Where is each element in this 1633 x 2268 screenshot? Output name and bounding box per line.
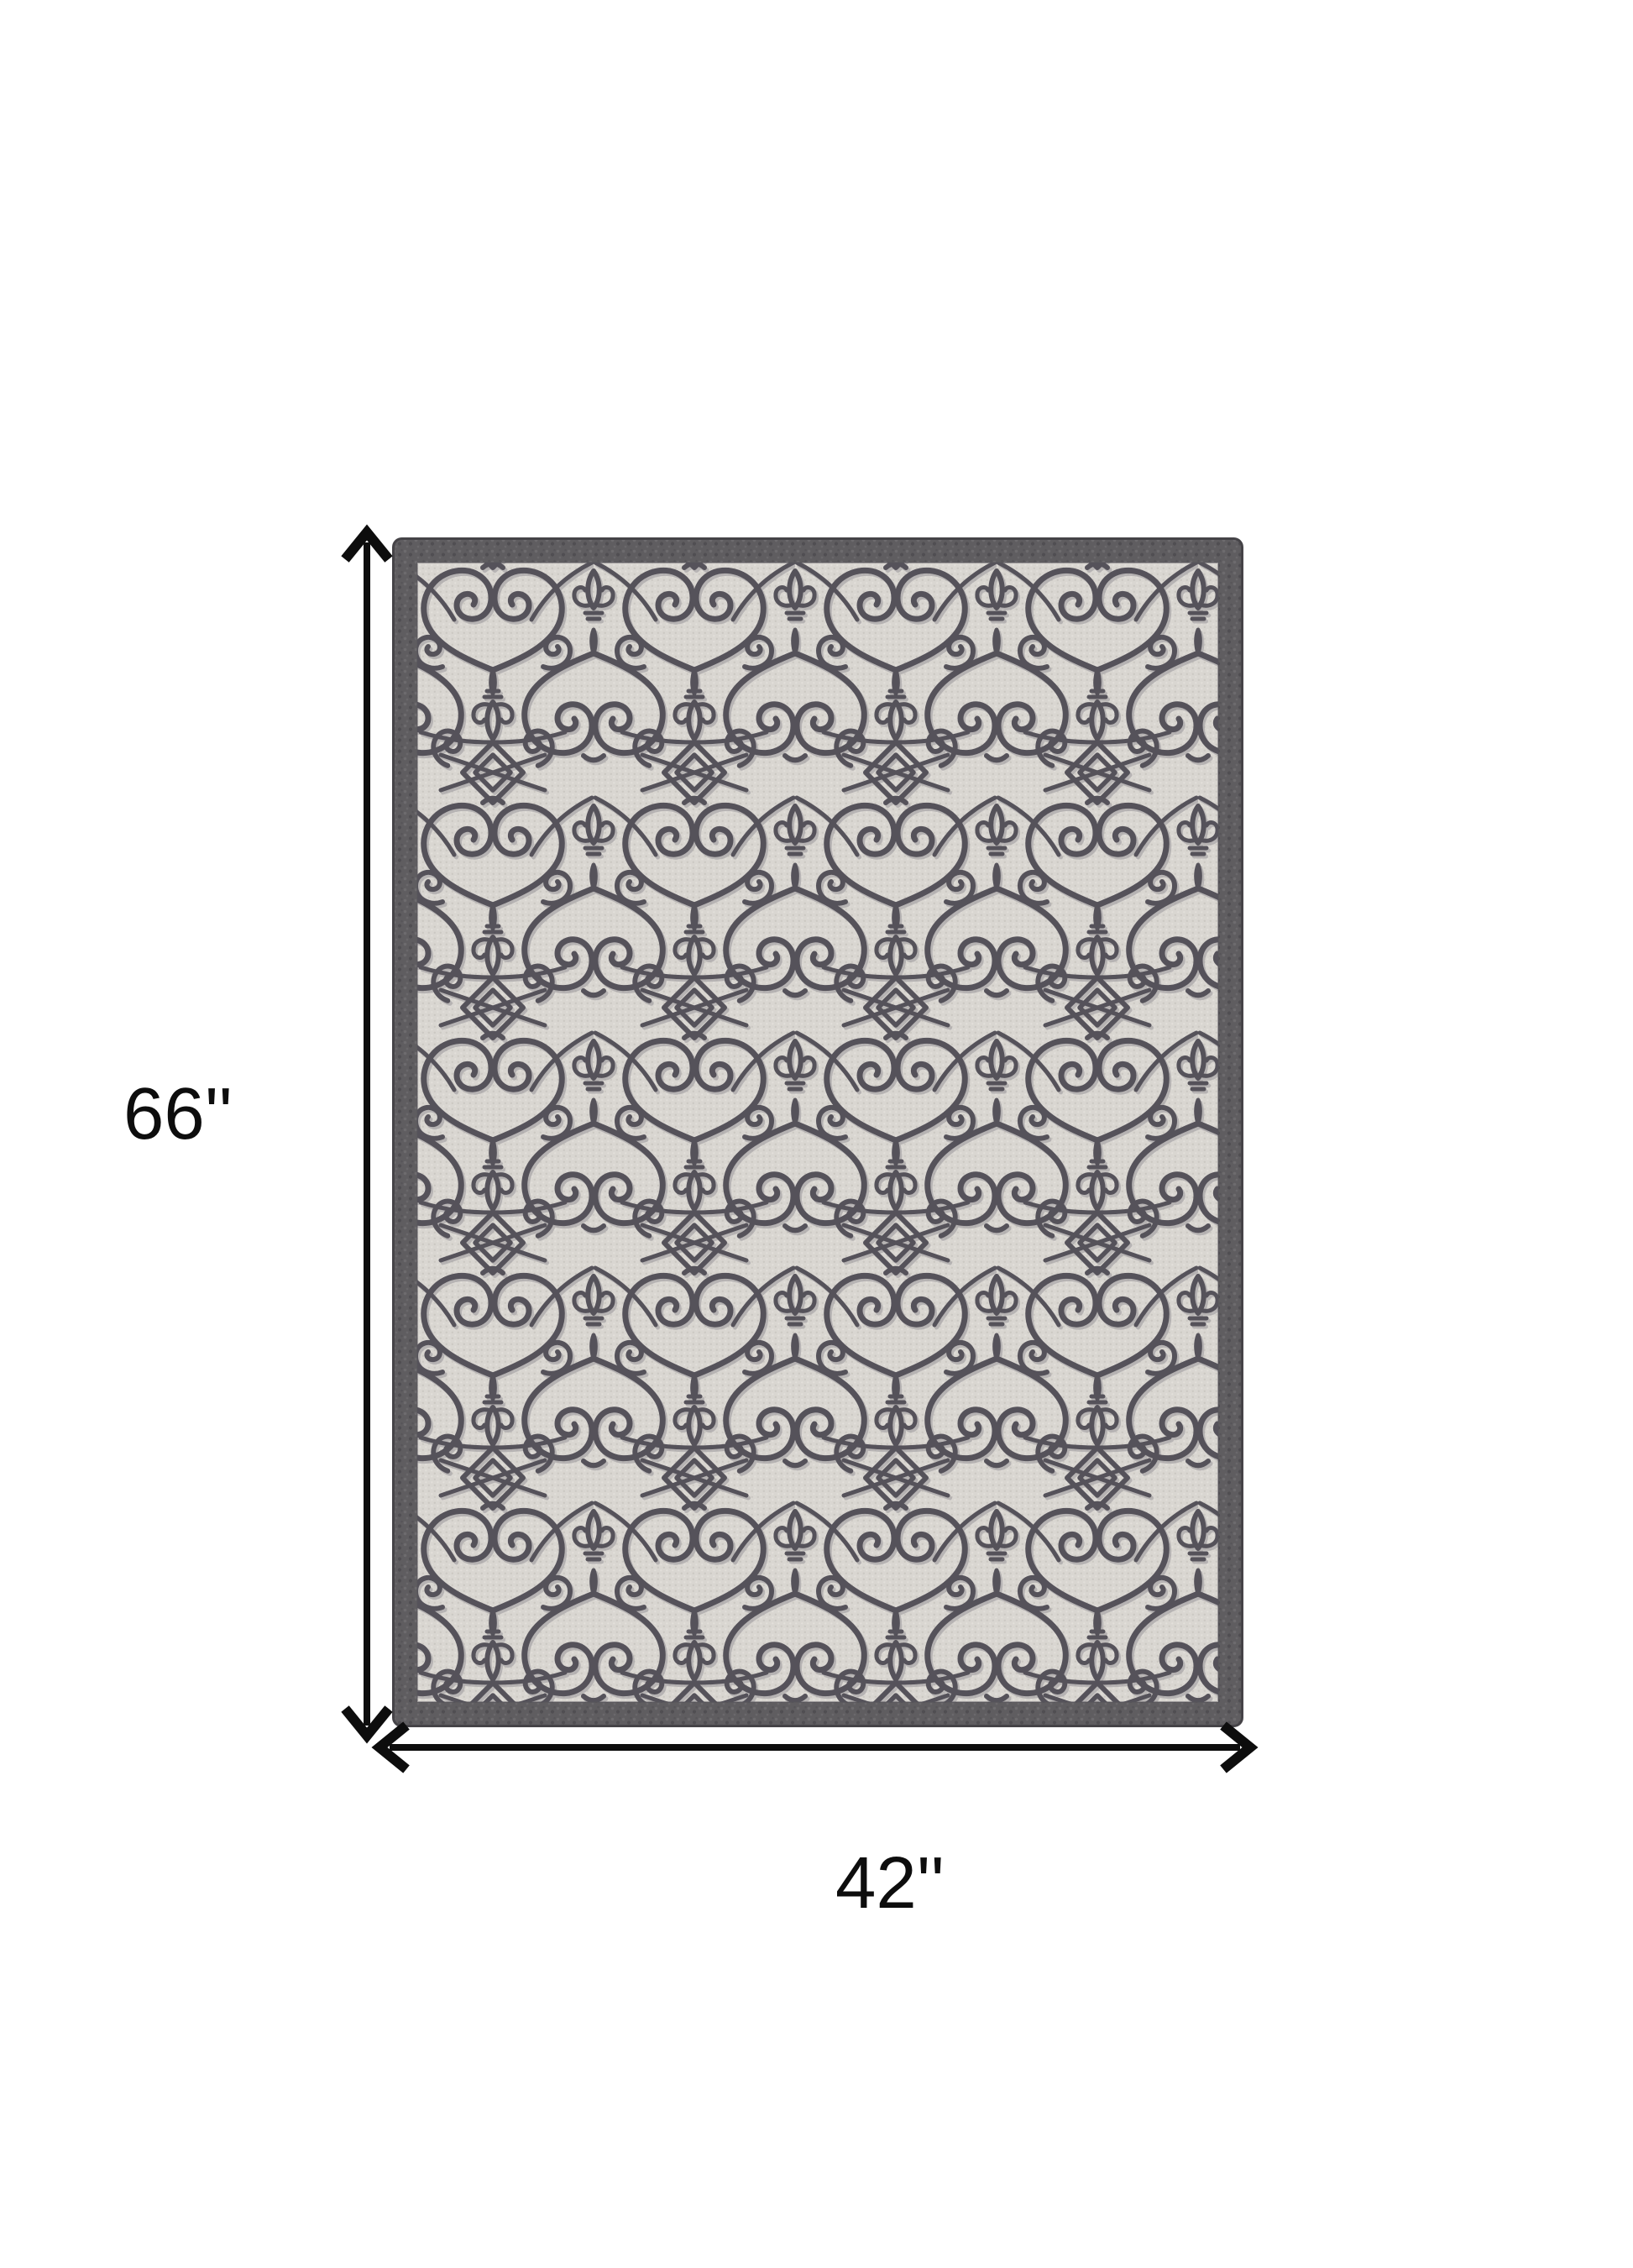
arrowhead-left-icon [379,1726,406,1769]
rug-scroll-pattern [417,563,1218,1702]
arrowhead-right-icon [1223,1726,1250,1769]
double-headed-horizontal-arrow-icon [379,1726,1250,1769]
arrowhead-down-icon [345,1709,389,1736]
width-dimension-label: 42'' [831,1846,949,1921]
height-dimension-label: 66'' [119,1076,237,1152]
product-dimension-diagram: 66'' 42'' [0,0,1633,2268]
rug-graphic [392,537,1243,1727]
rug-image [392,537,1243,1727]
arrowhead-up-icon [345,532,389,559]
double-headed-vertical-arrow-icon [345,532,389,1736]
